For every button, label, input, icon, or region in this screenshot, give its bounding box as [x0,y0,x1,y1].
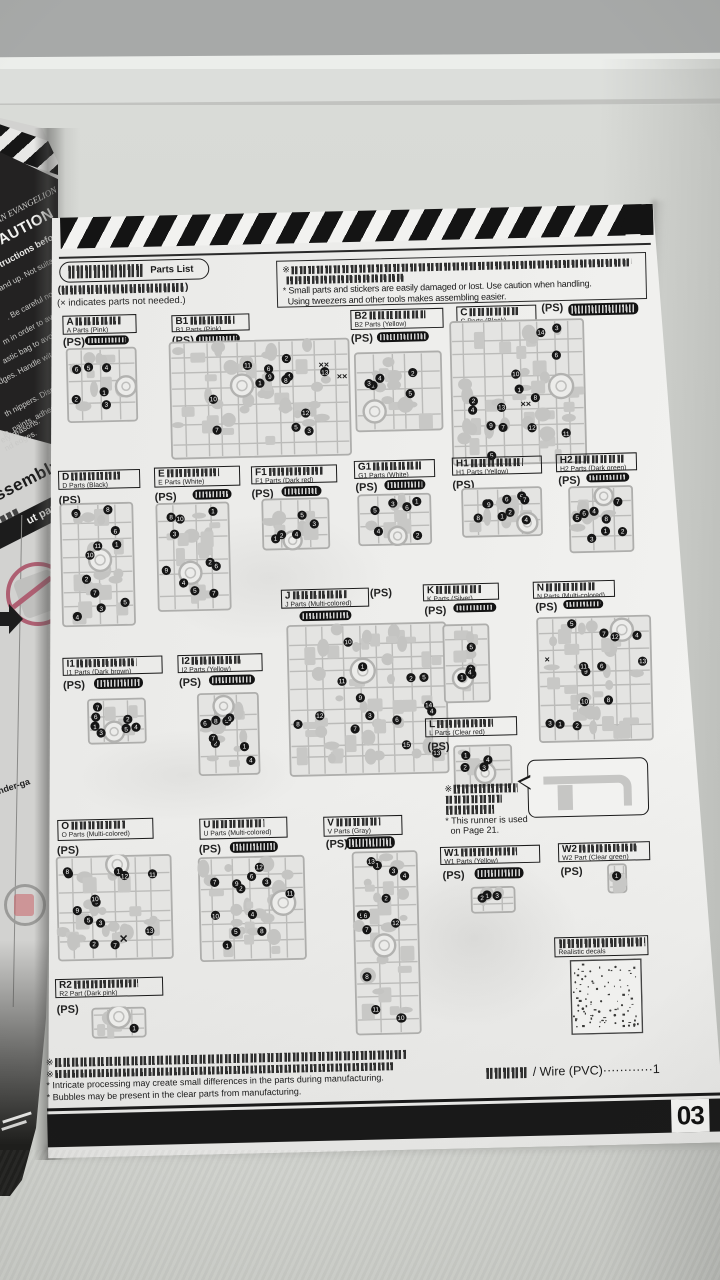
svg-text:12: 12 [316,713,324,720]
svg-text:12: 12 [611,634,619,641]
svg-text:1: 1 [615,873,619,880]
svg-text:2: 2 [74,396,78,403]
svg-text:4: 4 [251,911,255,918]
svg-text:1: 1 [604,528,608,535]
svg-text:1: 1 [375,862,379,869]
svg-text:5: 5 [193,588,197,595]
svg-text:2: 2 [280,533,284,540]
svg-text:2: 2 [416,532,420,539]
svg-text:6: 6 [114,529,118,536]
svg-text:6: 6 [555,352,559,359]
svg-text:3: 3 [392,868,396,875]
svg-text:2: 2 [508,509,512,516]
svg-text:9: 9 [235,881,239,888]
svg-text:10: 10 [512,371,520,378]
svg-text:6: 6 [505,496,509,503]
svg-text:8: 8 [214,718,218,725]
svg-text:11: 11 [372,1007,379,1014]
svg-text:5: 5 [123,599,127,606]
svg-text:5: 5 [87,917,91,924]
svg-text:11: 11 [94,543,101,550]
svg-text:3: 3 [555,325,559,332]
svg-text:3: 3 [391,501,395,508]
svg-text:2: 2 [85,576,89,583]
svg-text:3: 3 [367,381,371,388]
svg-text:3: 3 [265,879,269,886]
svg-text:1: 1 [115,542,119,549]
svg-text:3: 3 [99,920,103,927]
svg-text:1: 1 [460,674,464,681]
svg-text:12: 12 [528,425,536,432]
svg-text:7: 7 [93,590,97,597]
svg-text:6: 6 [395,717,399,724]
svg-text:13: 13 [639,658,647,665]
svg-text:6: 6 [203,720,207,727]
svg-text:3: 3 [105,402,109,409]
svg-text:2: 2 [480,895,484,902]
svg-text:10: 10 [581,698,589,705]
svg-text:3: 3 [312,521,316,528]
svg-text:5: 5 [124,726,128,733]
svg-text:11: 11 [244,362,251,369]
svg-text:13: 13 [321,370,329,377]
svg-text:1: 1 [415,498,419,505]
svg-text:5: 5 [294,424,298,431]
svg-text:4: 4 [471,407,475,414]
svg-text:4: 4 [486,757,490,764]
svg-text:10: 10 [212,913,220,920]
svg-text:3: 3 [99,730,103,737]
svg-text:2: 2 [285,355,289,362]
svg-text:9: 9 [164,567,168,574]
svg-text:15: 15 [403,742,411,749]
svg-text:3: 3 [307,428,311,435]
svg-text:13: 13 [368,859,376,866]
svg-text:5: 5 [469,644,473,651]
svg-text:8: 8 [296,721,300,728]
svg-text:1: 1 [132,1025,136,1032]
svg-text:5: 5 [87,365,91,372]
svg-text:14: 14 [537,329,545,336]
svg-text:4: 4 [403,873,407,880]
svg-text:2: 2 [621,529,625,536]
svg-text:7: 7 [365,927,369,934]
svg-text:××: ×× [318,360,329,370]
svg-text:4: 4 [76,614,80,621]
svg-text:8: 8 [106,507,110,514]
svg-text:3: 3 [495,893,499,900]
svg-text:5: 5 [422,674,426,681]
svg-text:12: 12 [302,410,310,417]
svg-text:5: 5 [300,512,304,519]
svg-text:1: 1 [274,536,278,543]
svg-text:10: 10 [344,639,352,646]
svg-text:8: 8 [169,514,173,521]
svg-text:8: 8 [607,697,611,704]
svg-text:7: 7 [113,943,117,950]
svg-text:6: 6 [600,663,604,670]
svg-text:1: 1 [102,390,106,397]
svg-text:9: 9 [487,502,491,509]
svg-text:7: 7 [616,499,620,506]
svg-text:11: 11 [563,431,570,438]
svg-text:6: 6 [405,505,409,512]
svg-text:10: 10 [177,516,185,523]
svg-text:9: 9 [268,374,272,381]
svg-text:8: 8 [534,395,538,402]
svg-text:9: 9 [74,511,78,518]
svg-text:10: 10 [397,1015,405,1022]
svg-text:11: 11 [580,664,587,671]
svg-text:2: 2 [92,941,96,948]
svg-text:10: 10 [210,396,218,403]
svg-text:6: 6 [364,913,368,920]
svg-text:7: 7 [211,735,215,742]
svg-text:9: 9 [489,423,493,430]
svg-text:1: 1 [500,513,504,520]
svg-text:1: 1 [243,744,247,751]
svg-text:8: 8 [365,974,369,981]
svg-text:××: ×× [337,371,348,381]
svg-text:7: 7 [96,705,100,712]
svg-text:10: 10 [91,896,99,903]
svg-text:6: 6 [94,714,98,721]
svg-text:2: 2 [126,716,130,723]
svg-text:8: 8 [260,928,264,935]
svg-text:14: 14 [425,702,433,709]
svg-text:1: 1 [211,508,215,515]
svg-text:5: 5 [575,515,579,522]
svg-text:5: 5 [570,621,574,628]
svg-text:11: 11 [149,872,156,879]
svg-text:5: 5 [373,507,377,514]
svg-text:5: 5 [234,929,238,936]
svg-text:3: 3 [590,536,594,543]
svg-text:4: 4 [378,375,382,382]
svg-text:11: 11 [287,890,294,897]
svg-text:1: 1 [464,752,468,759]
svg-text:6: 6 [250,873,254,880]
svg-text:6: 6 [214,563,218,570]
svg-text:13: 13 [498,404,506,411]
svg-text:2: 2 [384,895,388,902]
svg-text:2: 2 [463,764,467,771]
svg-text:12: 12 [121,873,129,880]
svg-text:12: 12 [392,920,400,927]
svg-text:4: 4 [635,632,639,639]
svg-text:4: 4 [249,757,253,764]
svg-text:4: 4 [182,580,186,587]
svg-text:11: 11 [339,678,346,685]
svg-text:12: 12 [256,864,264,871]
svg-text:7: 7 [215,427,219,434]
svg-text:4: 4 [134,724,138,731]
svg-text:4: 4 [524,517,528,524]
svg-text:4: 4 [468,669,472,676]
svg-text:7: 7 [523,497,527,504]
svg-text:9: 9 [75,908,79,915]
svg-text:×: × [544,654,549,664]
svg-text:3: 3 [548,720,552,727]
svg-text:3: 3 [368,713,372,720]
svg-text:7: 7 [213,879,217,886]
svg-text:9: 9 [359,695,363,702]
svg-text:××: ×× [520,399,531,409]
svg-text:4: 4 [295,531,299,538]
svg-text:5: 5 [408,391,412,398]
svg-text:9: 9 [228,716,232,723]
svg-text:2: 2 [411,370,415,377]
svg-text:6: 6 [75,366,79,373]
svg-text:✕: ✕ [119,933,128,945]
svg-text:1: 1 [225,943,229,950]
svg-text:7: 7 [212,590,216,597]
svg-text:8: 8 [604,516,608,523]
svg-text:4: 4 [592,508,596,515]
svg-text:6: 6 [582,510,586,517]
svg-text:2: 2 [409,676,413,683]
svg-text:3: 3 [173,531,177,538]
svg-text:7: 7 [602,631,606,638]
svg-text:4: 4 [377,528,381,535]
svg-text:3: 3 [482,765,486,772]
svg-text:6: 6 [267,366,271,373]
svg-text:1: 1 [558,721,562,728]
svg-text:7: 7 [353,726,357,733]
svg-text:1: 1 [517,387,521,394]
svg-text:1: 1 [258,380,262,387]
svg-text:13: 13 [146,928,154,935]
svg-text:4: 4 [105,365,109,372]
svg-text:3: 3 [99,606,103,613]
svg-text:10: 10 [86,552,94,559]
svg-text:7: 7 [501,424,505,431]
svg-text:1: 1 [361,664,365,671]
svg-text:1: 1 [93,724,97,731]
svg-text:8: 8 [66,869,70,876]
svg-text:2: 2 [575,723,579,730]
svg-text:8: 8 [476,515,480,522]
svg-text:2: 2 [472,398,476,405]
svg-text:8: 8 [284,377,288,384]
